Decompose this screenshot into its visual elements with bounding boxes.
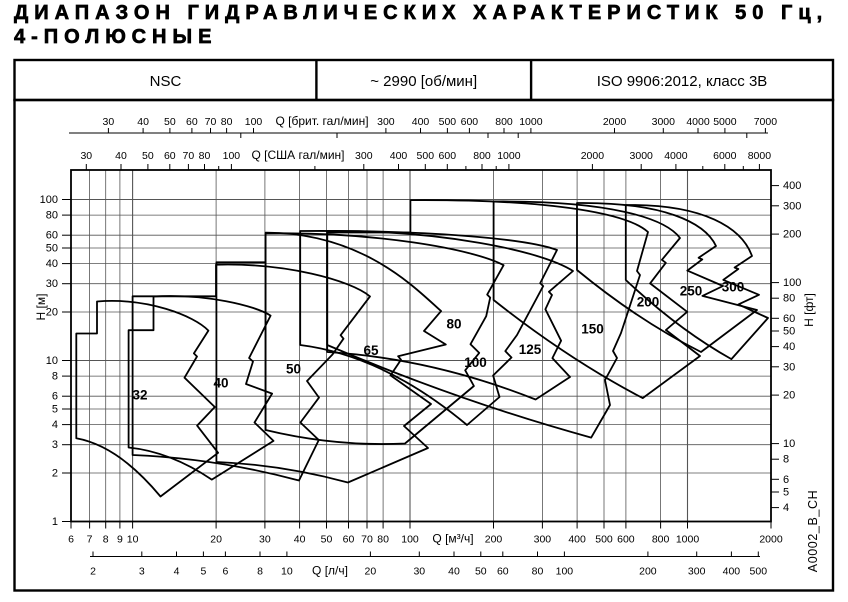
svg-text:150: 150 — [581, 322, 604, 337]
svg-text:3000: 3000 — [630, 150, 654, 162]
svg-text:80: 80 — [446, 317, 461, 332]
svg-text:800: 800 — [495, 116, 513, 128]
svg-text:600: 600 — [617, 534, 635, 546]
svg-text:500: 500 — [750, 566, 768, 578]
svg-text:30: 30 — [413, 566, 425, 578]
svg-text:300: 300 — [783, 200, 801, 212]
svg-text:800: 800 — [473, 150, 491, 162]
svg-text:3: 3 — [52, 439, 58, 451]
svg-text:30: 30 — [46, 278, 58, 290]
svg-text:200: 200 — [783, 229, 801, 241]
svg-text:50: 50 — [783, 326, 795, 338]
svg-text:80: 80 — [46, 210, 58, 222]
svg-text:50: 50 — [46, 243, 58, 255]
svg-text:20: 20 — [365, 566, 377, 578]
svg-text:2: 2 — [90, 566, 96, 578]
svg-text:50: 50 — [142, 150, 154, 162]
svg-text:8: 8 — [52, 371, 58, 383]
svg-text:70: 70 — [361, 534, 373, 546]
svg-text:100: 100 — [556, 566, 574, 578]
svg-text:~ 2990 [об/мин]: ~ 2990 [об/мин] — [370, 73, 477, 90]
svg-text:80: 80 — [199, 150, 211, 162]
svg-text:10: 10 — [783, 438, 795, 450]
svg-text:9: 9 — [117, 534, 123, 546]
svg-text:4000: 4000 — [664, 150, 688, 162]
svg-text:60: 60 — [186, 116, 198, 128]
svg-text:10: 10 — [281, 566, 293, 578]
svg-text:Q [л/ч]: Q [л/ч] — [312, 564, 348, 578]
svg-text:ISO 9906:2012, класс 3В: ISO 9906:2012, класс 3В — [597, 73, 768, 90]
svg-text:4000: 4000 — [686, 116, 710, 128]
svg-text:32: 32 — [132, 388, 147, 403]
svg-text:10: 10 — [127, 534, 139, 546]
svg-text:50: 50 — [164, 116, 176, 128]
svg-text:6: 6 — [52, 391, 58, 403]
svg-text:NSC: NSC — [150, 73, 182, 90]
svg-text:60: 60 — [164, 150, 176, 162]
svg-text:4: 4 — [52, 419, 58, 431]
svg-text:100: 100 — [223, 150, 241, 162]
svg-text:2000: 2000 — [759, 534, 783, 546]
svg-text:300: 300 — [355, 150, 373, 162]
svg-text:3: 3 — [139, 566, 145, 578]
svg-text:500: 500 — [439, 116, 457, 128]
svg-text:A0002_B_CH: A0002_B_CH — [806, 490, 820, 572]
svg-text:2000: 2000 — [603, 116, 627, 128]
svg-text:300: 300 — [722, 280, 745, 295]
svg-text:1000: 1000 — [497, 150, 521, 162]
svg-text:2: 2 — [52, 468, 58, 480]
svg-text:60: 60 — [497, 566, 509, 578]
svg-text:H [м]: H [м] — [34, 294, 48, 321]
svg-text:800: 800 — [652, 534, 670, 546]
svg-text:200: 200 — [639, 566, 657, 578]
svg-text:400: 400 — [390, 150, 408, 162]
svg-text:70: 70 — [183, 150, 195, 162]
svg-text:300: 300 — [688, 566, 706, 578]
svg-text:40: 40 — [137, 116, 149, 128]
svg-text:20: 20 — [210, 534, 222, 546]
svg-text:100: 100 — [783, 277, 801, 289]
svg-text:30: 30 — [103, 116, 115, 128]
svg-text:1: 1 — [52, 516, 58, 528]
svg-text:100: 100 — [40, 194, 58, 206]
svg-text:65: 65 — [363, 343, 379, 358]
svg-text:7000: 7000 — [754, 116, 778, 128]
svg-text:Q [брит. гал/мин]: Q [брит. гал/мин] — [275, 114, 368, 128]
svg-text:50: 50 — [475, 566, 487, 578]
svg-text:60: 60 — [343, 534, 355, 546]
svg-text:6000: 6000 — [713, 150, 737, 162]
svg-text:6: 6 — [783, 474, 789, 486]
svg-text:100: 100 — [401, 534, 419, 546]
svg-text:8: 8 — [257, 566, 263, 578]
svg-text:80: 80 — [532, 566, 544, 578]
svg-text:400: 400 — [723, 566, 741, 578]
svg-text:80: 80 — [783, 293, 795, 305]
svg-text:30: 30 — [259, 534, 271, 546]
svg-text:10: 10 — [46, 355, 58, 367]
svg-text:5000: 5000 — [713, 116, 737, 128]
svg-text:400: 400 — [568, 534, 586, 546]
svg-text:80: 80 — [221, 116, 233, 128]
svg-text:5: 5 — [52, 404, 58, 416]
svg-text:8: 8 — [783, 454, 789, 466]
svg-text:40: 40 — [294, 534, 306, 546]
svg-text:600: 600 — [461, 116, 479, 128]
svg-text:40: 40 — [448, 566, 460, 578]
svg-text:200: 200 — [637, 295, 660, 310]
svg-text:50: 50 — [321, 534, 333, 546]
svg-text:H [фт]: H [фт] — [802, 293, 816, 327]
svg-text:7: 7 — [87, 534, 93, 546]
svg-text:4: 4 — [783, 502, 789, 514]
svg-text:6: 6 — [68, 534, 74, 546]
svg-text:40: 40 — [213, 376, 228, 391]
svg-text:30: 30 — [80, 150, 92, 162]
svg-text:400: 400 — [412, 116, 430, 128]
svg-text:600: 600 — [439, 150, 457, 162]
svg-text:300: 300 — [377, 116, 395, 128]
svg-text:500: 500 — [595, 534, 613, 546]
svg-text:Q [США гал/мин]: Q [США гал/мин] — [251, 148, 344, 162]
svg-text:100: 100 — [464, 355, 487, 370]
svg-text:100: 100 — [245, 116, 263, 128]
svg-text:1000: 1000 — [676, 534, 700, 546]
svg-text:3000: 3000 — [652, 116, 676, 128]
svg-text:80: 80 — [377, 534, 389, 546]
svg-text:30: 30 — [783, 361, 795, 373]
svg-text:5: 5 — [783, 487, 789, 499]
svg-text:300: 300 — [534, 534, 552, 546]
svg-text:500: 500 — [417, 150, 435, 162]
svg-text:70: 70 — [205, 116, 217, 128]
svg-text:40: 40 — [783, 341, 795, 353]
svg-text:250: 250 — [680, 284, 703, 299]
svg-text:2000: 2000 — [581, 150, 605, 162]
svg-text:Q [м³/ч]: Q [м³/ч] — [432, 532, 473, 546]
svg-text:5: 5 — [200, 566, 206, 578]
svg-text:4: 4 — [174, 566, 180, 578]
svg-text:40: 40 — [46, 258, 58, 270]
svg-text:60: 60 — [783, 313, 795, 325]
svg-text:8000: 8000 — [748, 150, 772, 162]
svg-text:20: 20 — [783, 390, 795, 402]
svg-text:125: 125 — [519, 342, 542, 357]
svg-text:8: 8 — [103, 534, 109, 546]
svg-text:1000: 1000 — [519, 116, 543, 128]
svg-text:50: 50 — [286, 362, 301, 377]
svg-text:40: 40 — [115, 150, 127, 162]
svg-text:200: 200 — [485, 534, 503, 546]
svg-text:6: 6 — [222, 566, 228, 578]
svg-text:400: 400 — [783, 180, 801, 192]
svg-text:60: 60 — [46, 230, 58, 242]
